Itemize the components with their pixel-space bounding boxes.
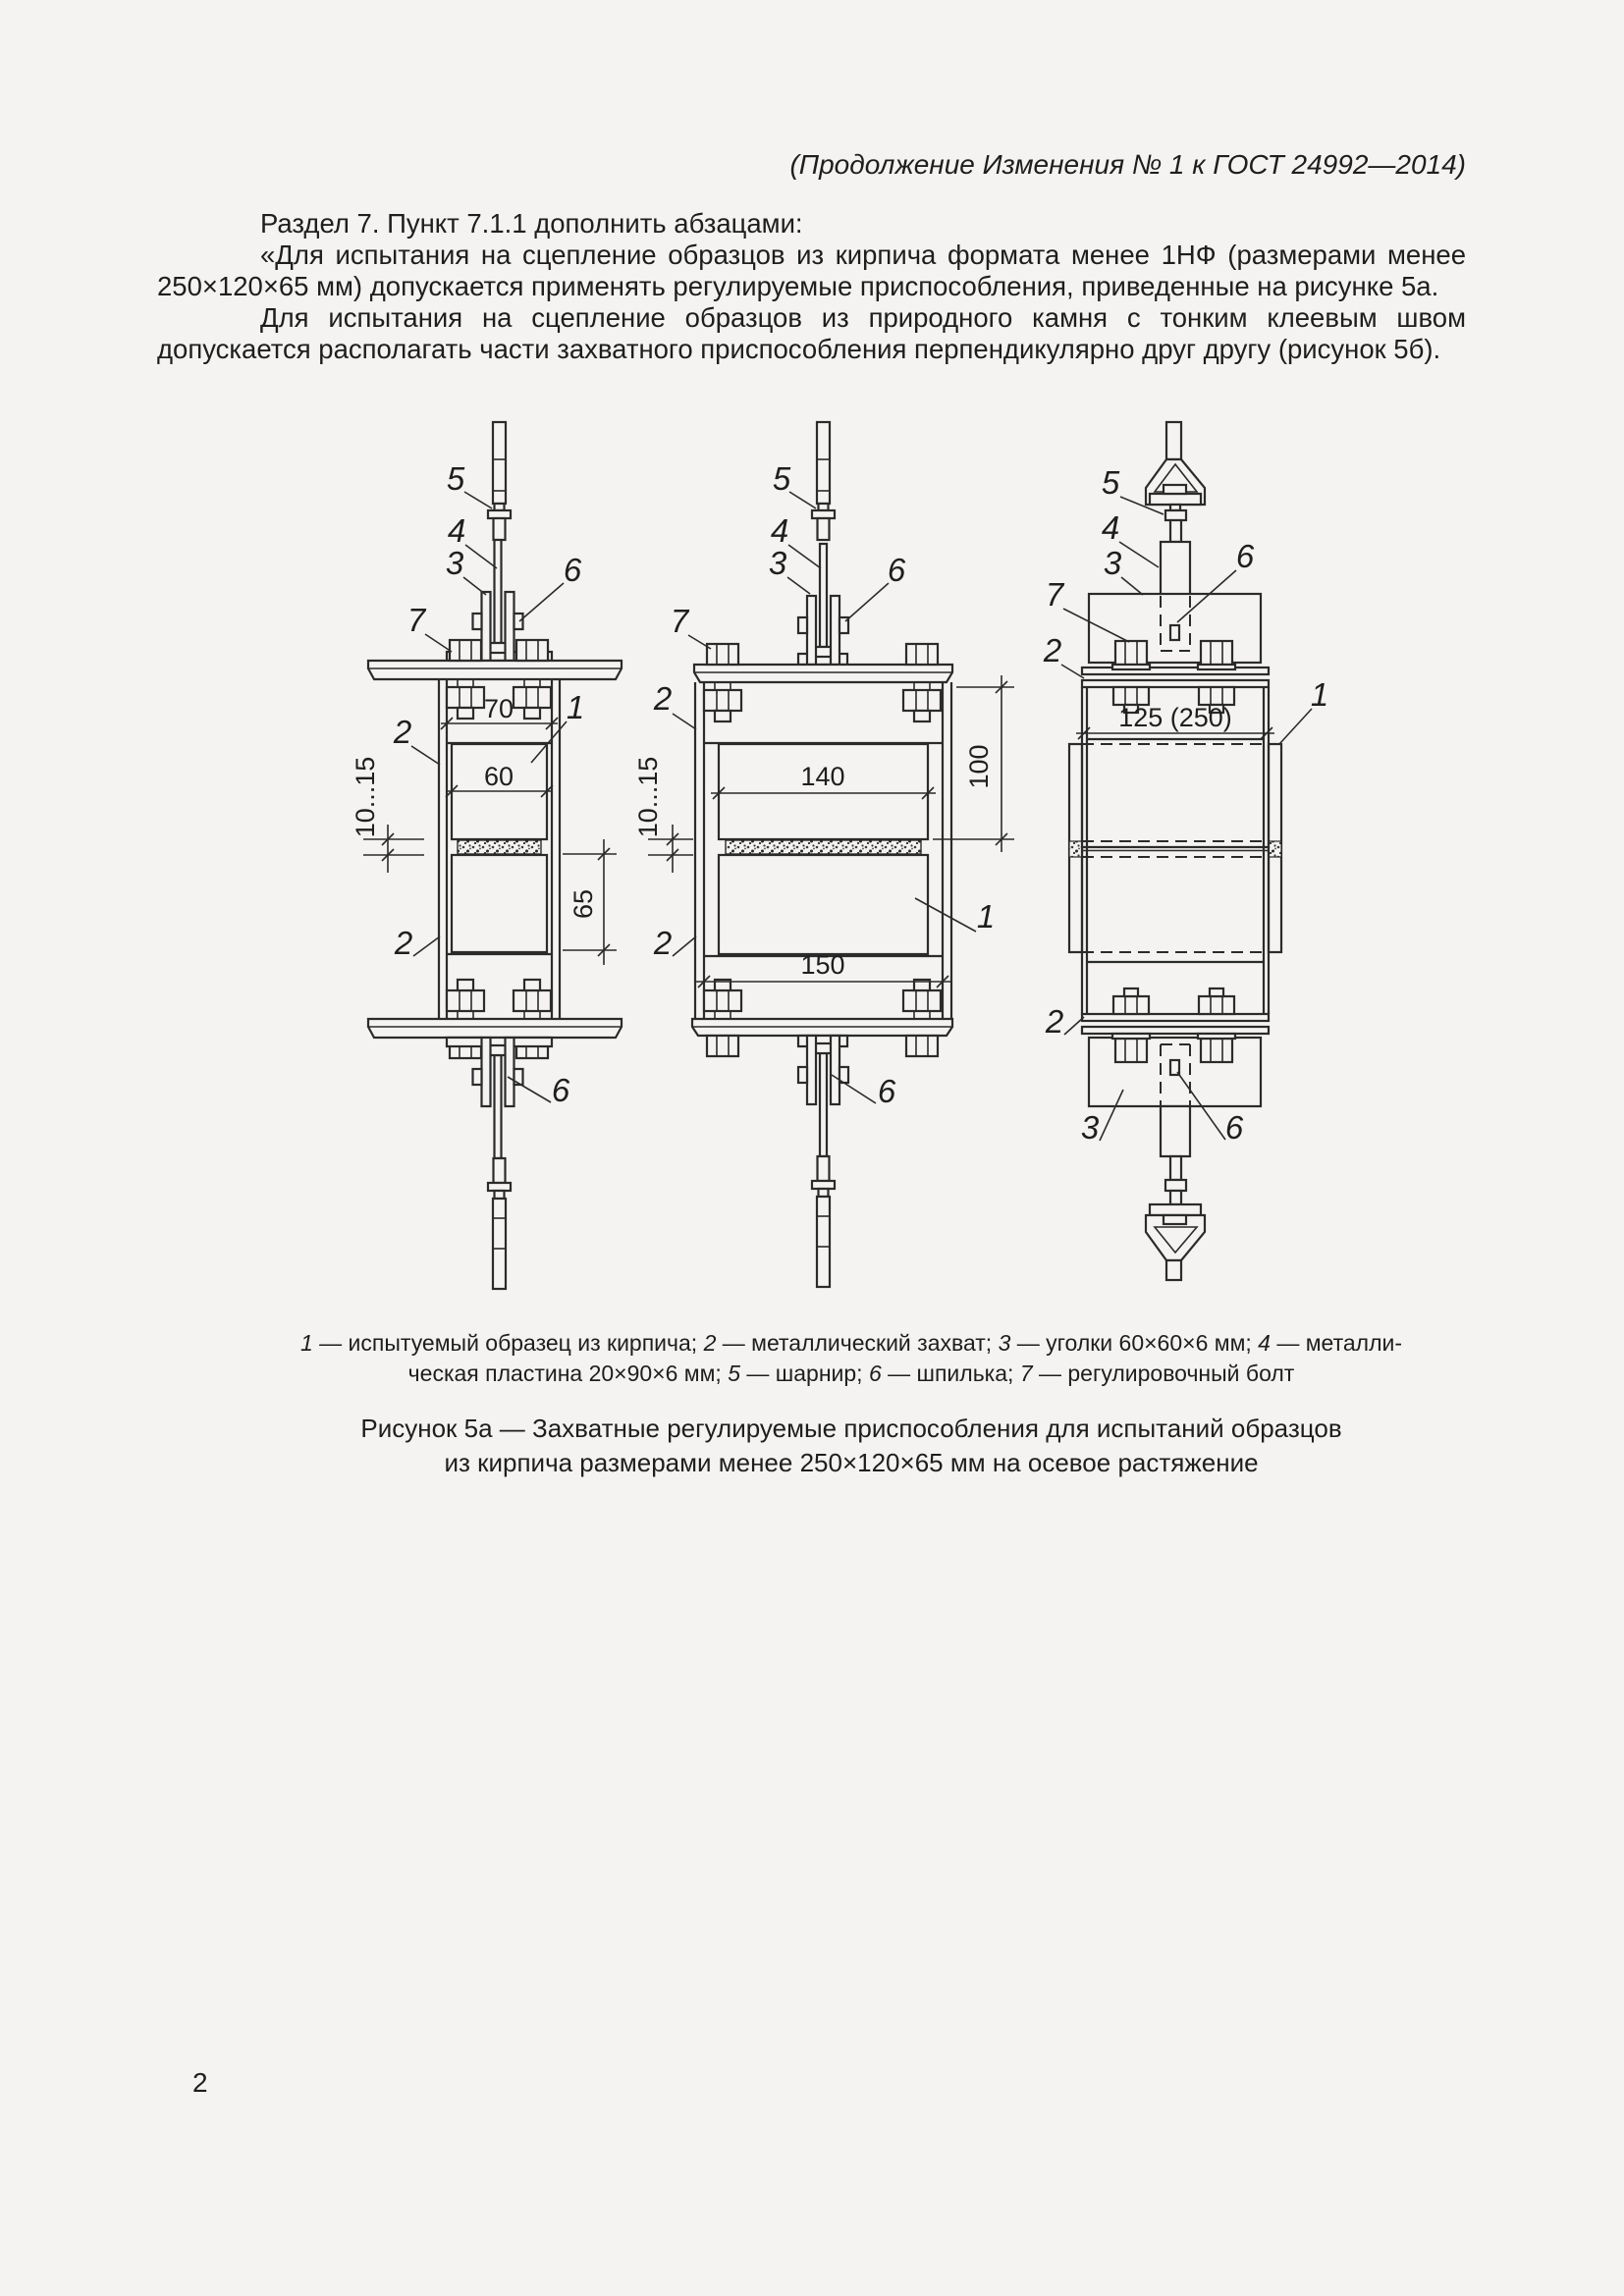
upper-shackle xyxy=(1146,422,1205,596)
legend-text-3: — уголки 60×60×6 мм; xyxy=(1010,1330,1258,1356)
upper-bracket xyxy=(798,422,848,665)
callout-2-lower: 2 xyxy=(394,925,412,961)
dim-joint: 10...15 xyxy=(351,757,380,838)
legend-text-5: — шарнир; xyxy=(740,1361,869,1386)
legend-text-1: — испытуемый образец из кирпича; xyxy=(313,1330,704,1356)
callout-3: 3 xyxy=(769,545,787,581)
brick-specimen-side xyxy=(1069,744,1281,952)
legend-text-7: — регулировочный болт xyxy=(1033,1361,1295,1386)
legend-num-6: 6 xyxy=(869,1361,882,1386)
caption-line-1: Рисунок 5а — Захватные регулируемые прис… xyxy=(236,1412,1467,1446)
drawing-a: 70 60 10...15 65 5 4 3 6 7 xyxy=(351,422,622,1289)
callout-3-lower: 3 xyxy=(1081,1109,1100,1146)
callout-6-lower: 6 xyxy=(552,1072,570,1108)
paragraph-3: Для испытания на сцепление образцов из п… xyxy=(157,302,1466,365)
callout-5: 5 xyxy=(1102,464,1120,501)
callout-7: 7 xyxy=(671,603,690,639)
document-page: (Продолжение Изменения № 1 к ГОСТ 24992—… xyxy=(0,0,1624,2296)
callout-3: 3 xyxy=(446,545,464,581)
callout-1: 1 xyxy=(977,898,995,934)
dim-100: 100 xyxy=(964,744,994,788)
callout-2: 2 xyxy=(653,680,672,717)
upper-flange xyxy=(1082,667,1269,687)
dim-150: 150 xyxy=(800,950,844,980)
legend-text-4b: ческая пластина 20×90×6 мм; xyxy=(408,1361,729,1386)
dim-125-250: 125 (250) xyxy=(1118,703,1232,732)
lower-flange xyxy=(1082,1014,1269,1034)
callout-4: 4 xyxy=(771,512,788,549)
legend-num-4: 4 xyxy=(1258,1330,1271,1356)
callout-7: 7 xyxy=(407,602,427,638)
mortar-joint xyxy=(458,840,541,854)
dim-65: 65 xyxy=(568,889,598,919)
callout-2-lower: 2 xyxy=(1045,1003,1063,1040)
dim-joint: 10...15 xyxy=(633,757,663,838)
legend-num-7: 7 xyxy=(1020,1361,1033,1386)
upper-flange-plate xyxy=(694,665,952,682)
legend-num-2: 2 xyxy=(704,1330,717,1356)
lower-bolts xyxy=(447,980,551,1019)
callout-1: 1 xyxy=(567,689,584,725)
dim-60: 60 xyxy=(484,762,514,791)
paragraph-1: Раздел 7. Пункт 7.1.1 дополнить абзацами… xyxy=(157,208,1466,240)
drawing-b: 140 100 10...15 150 5 4 3 6 7 xyxy=(633,422,1014,1287)
lower-bracket xyxy=(447,1038,552,1289)
callout-6: 6 xyxy=(1236,538,1255,574)
callout-2-lower: 2 xyxy=(653,925,672,961)
dimensions-c: 125 (250) xyxy=(1076,703,1274,739)
lower-shackle xyxy=(1146,1106,1205,1280)
dim-140: 140 xyxy=(800,762,844,791)
lower-bolts xyxy=(704,980,941,1019)
legend-text-6: — шпилька; xyxy=(882,1361,1020,1386)
dimensions-a: 70 60 10...15 65 xyxy=(351,694,617,965)
callout-2: 2 xyxy=(1043,632,1061,668)
body-text: Раздел 7. Пункт 7.1.1 дополнить абзацами… xyxy=(157,208,1466,365)
lower-bracket xyxy=(707,1036,938,1287)
legend-line-1: 1 — испытуемый образец из кирпича; 2 — м… xyxy=(236,1328,1467,1359)
legend-num-5: 5 xyxy=(728,1361,740,1386)
paragraph-2: «Для испытания на сцепление образцов из … xyxy=(157,240,1466,302)
callout-2: 2 xyxy=(393,714,411,750)
callout-1: 1 xyxy=(1311,676,1328,713)
legend-text-2: — металлический захват; xyxy=(716,1330,998,1356)
upper-flange-plate xyxy=(368,661,622,679)
figure-caption: Рисунок 5а — Захватные регулируемые прис… xyxy=(236,1412,1467,1480)
legend-line-2: ческая пластина 20×90×6 мм; 5 — шарнир; … xyxy=(236,1359,1467,1389)
callout-6-lower: 6 xyxy=(1225,1109,1244,1146)
drawing-c: 125 (250) 5 4 3 6 7 2 1 2 3 6 xyxy=(1043,422,1328,1280)
mortar-joint xyxy=(726,840,921,854)
callout-3: 3 xyxy=(1104,545,1122,581)
figure-legend: 1 — испытуемый образец из кирпича; 2 — м… xyxy=(236,1328,1467,1389)
callout-6: 6 xyxy=(564,552,582,588)
callout-4: 4 xyxy=(1102,509,1119,546)
legend-text-4a: — металли- xyxy=(1271,1330,1402,1356)
callout-6-lower: 6 xyxy=(878,1073,896,1109)
page-number: 2 xyxy=(192,2067,208,2099)
callout-6: 6 xyxy=(888,552,906,588)
lower-flange-plate xyxy=(368,1019,622,1038)
callout-4: 4 xyxy=(448,512,465,549)
legend-num-1: 1 xyxy=(300,1330,313,1356)
figure-5a-drawing: 70 60 10...15 65 5 4 3 6 7 xyxy=(0,407,1624,1296)
callout-7: 7 xyxy=(1046,576,1065,613)
legend-num-3: 3 xyxy=(999,1330,1011,1356)
dim-70: 70 xyxy=(484,694,514,723)
page-header: (Продолжение Изменения № 1 к ГОСТ 24992—… xyxy=(157,149,1466,181)
callout-5: 5 xyxy=(773,460,791,497)
callout-5: 5 xyxy=(447,460,465,497)
caption-line-2: из кирпича размерами менее 250×120×65 мм… xyxy=(236,1446,1467,1480)
